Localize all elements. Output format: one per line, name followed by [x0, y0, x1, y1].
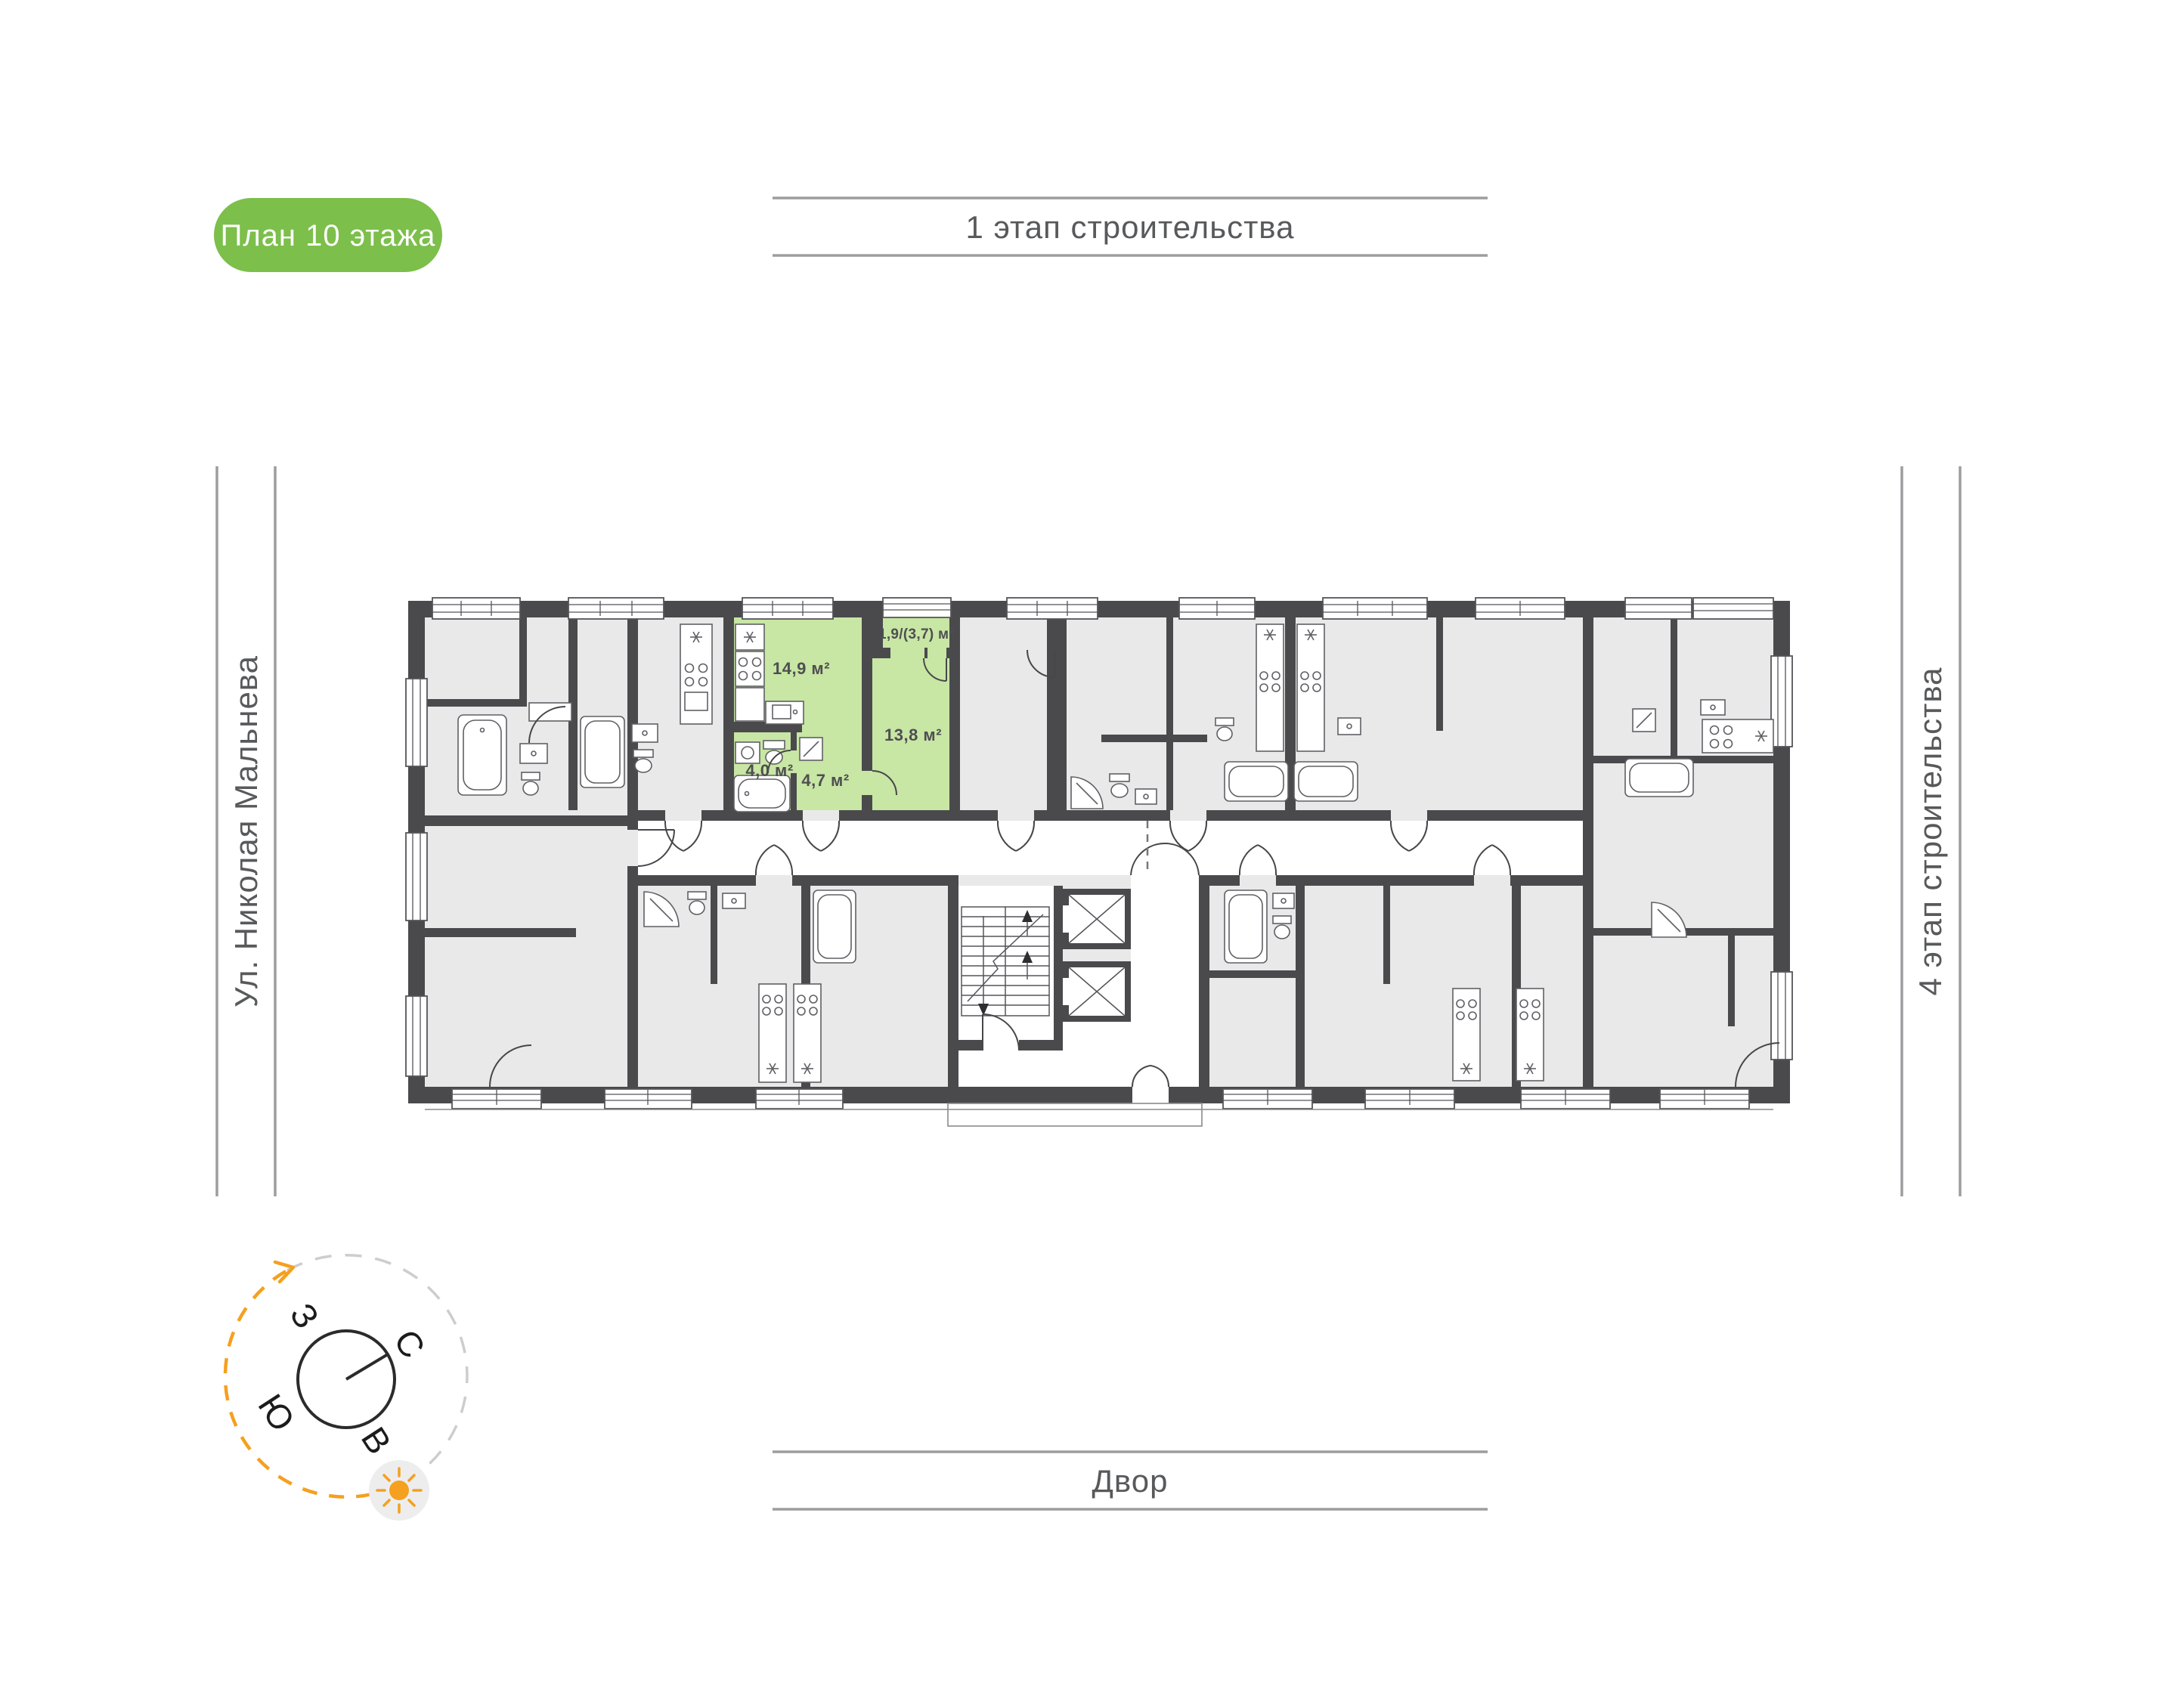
bathtub-icon — [1225, 890, 1267, 963]
sink-icon — [632, 724, 658, 742]
compass: З С Ю В — [225, 1255, 467, 1521]
kitchen-area-label: 14,9 м² — [773, 659, 830, 678]
compass-north: С — [386, 1323, 433, 1365]
floor-plan: 14,9 м² 1,9/(3,7) м² 13,8 м² 4,0 м² 4,7 … — [406, 598, 1792, 1126]
sink-icon — [1701, 700, 1725, 715]
sink-icon — [1273, 893, 1294, 908]
sun-icon — [369, 1460, 429, 1521]
street-text: Ул. Николая Мальнева — [228, 655, 264, 1007]
bathtub-icon — [813, 890, 856, 963]
page-canvas: План 10 этажа 1 этап строительства Ул. Н… — [0, 0, 2177, 1708]
toilet-icon — [688, 892, 706, 899]
toilet-icon — [522, 772, 540, 780]
compass-needle — [346, 1354, 388, 1379]
stage4-text: 4 этап строительства — [1912, 667, 1948, 995]
toilet-icon — [1110, 774, 1129, 781]
sink-icon — [520, 744, 547, 763]
floor-badge: План 10 этажа — [214, 198, 442, 272]
stage1-label: 1 этап строительства — [773, 198, 1488, 255]
bathtub-icon — [458, 715, 506, 795]
hallway-area-label: 4,7 м² — [801, 771, 849, 790]
courtyard-label: Двор — [773, 1452, 1488, 1509]
toilet-icon — [633, 750, 653, 757]
sink-icon — [1338, 718, 1361, 735]
bathroom-area-label: 4,0 м² — [745, 761, 793, 780]
sink-icon — [723, 893, 745, 908]
sink-icon — [1135, 789, 1157, 804]
counter — [529, 703, 571, 721]
compass-west: З — [283, 1296, 327, 1335]
balcony-area-label: 1,9/(3,7) м² — [878, 627, 954, 642]
entrance-opening — [1132, 1087, 1169, 1105]
stage4-label: 4 этап строительства — [1902, 466, 1960, 1196]
toilet-icon — [1215, 718, 1234, 726]
bathtub-icon — [581, 716, 624, 787]
courtyard-text: Двор — [1092, 1463, 1168, 1499]
street-label: Ул. Николая Мальнева — [217, 466, 275, 1196]
badge-label: План 10 этажа — [221, 219, 436, 252]
compass-south: Ю — [251, 1387, 303, 1437]
toilet-icon — [1273, 916, 1291, 924]
stage1-text: 1 этап строительства — [965, 209, 1294, 245]
room-area-label: 13,8 м² — [884, 726, 942, 744]
